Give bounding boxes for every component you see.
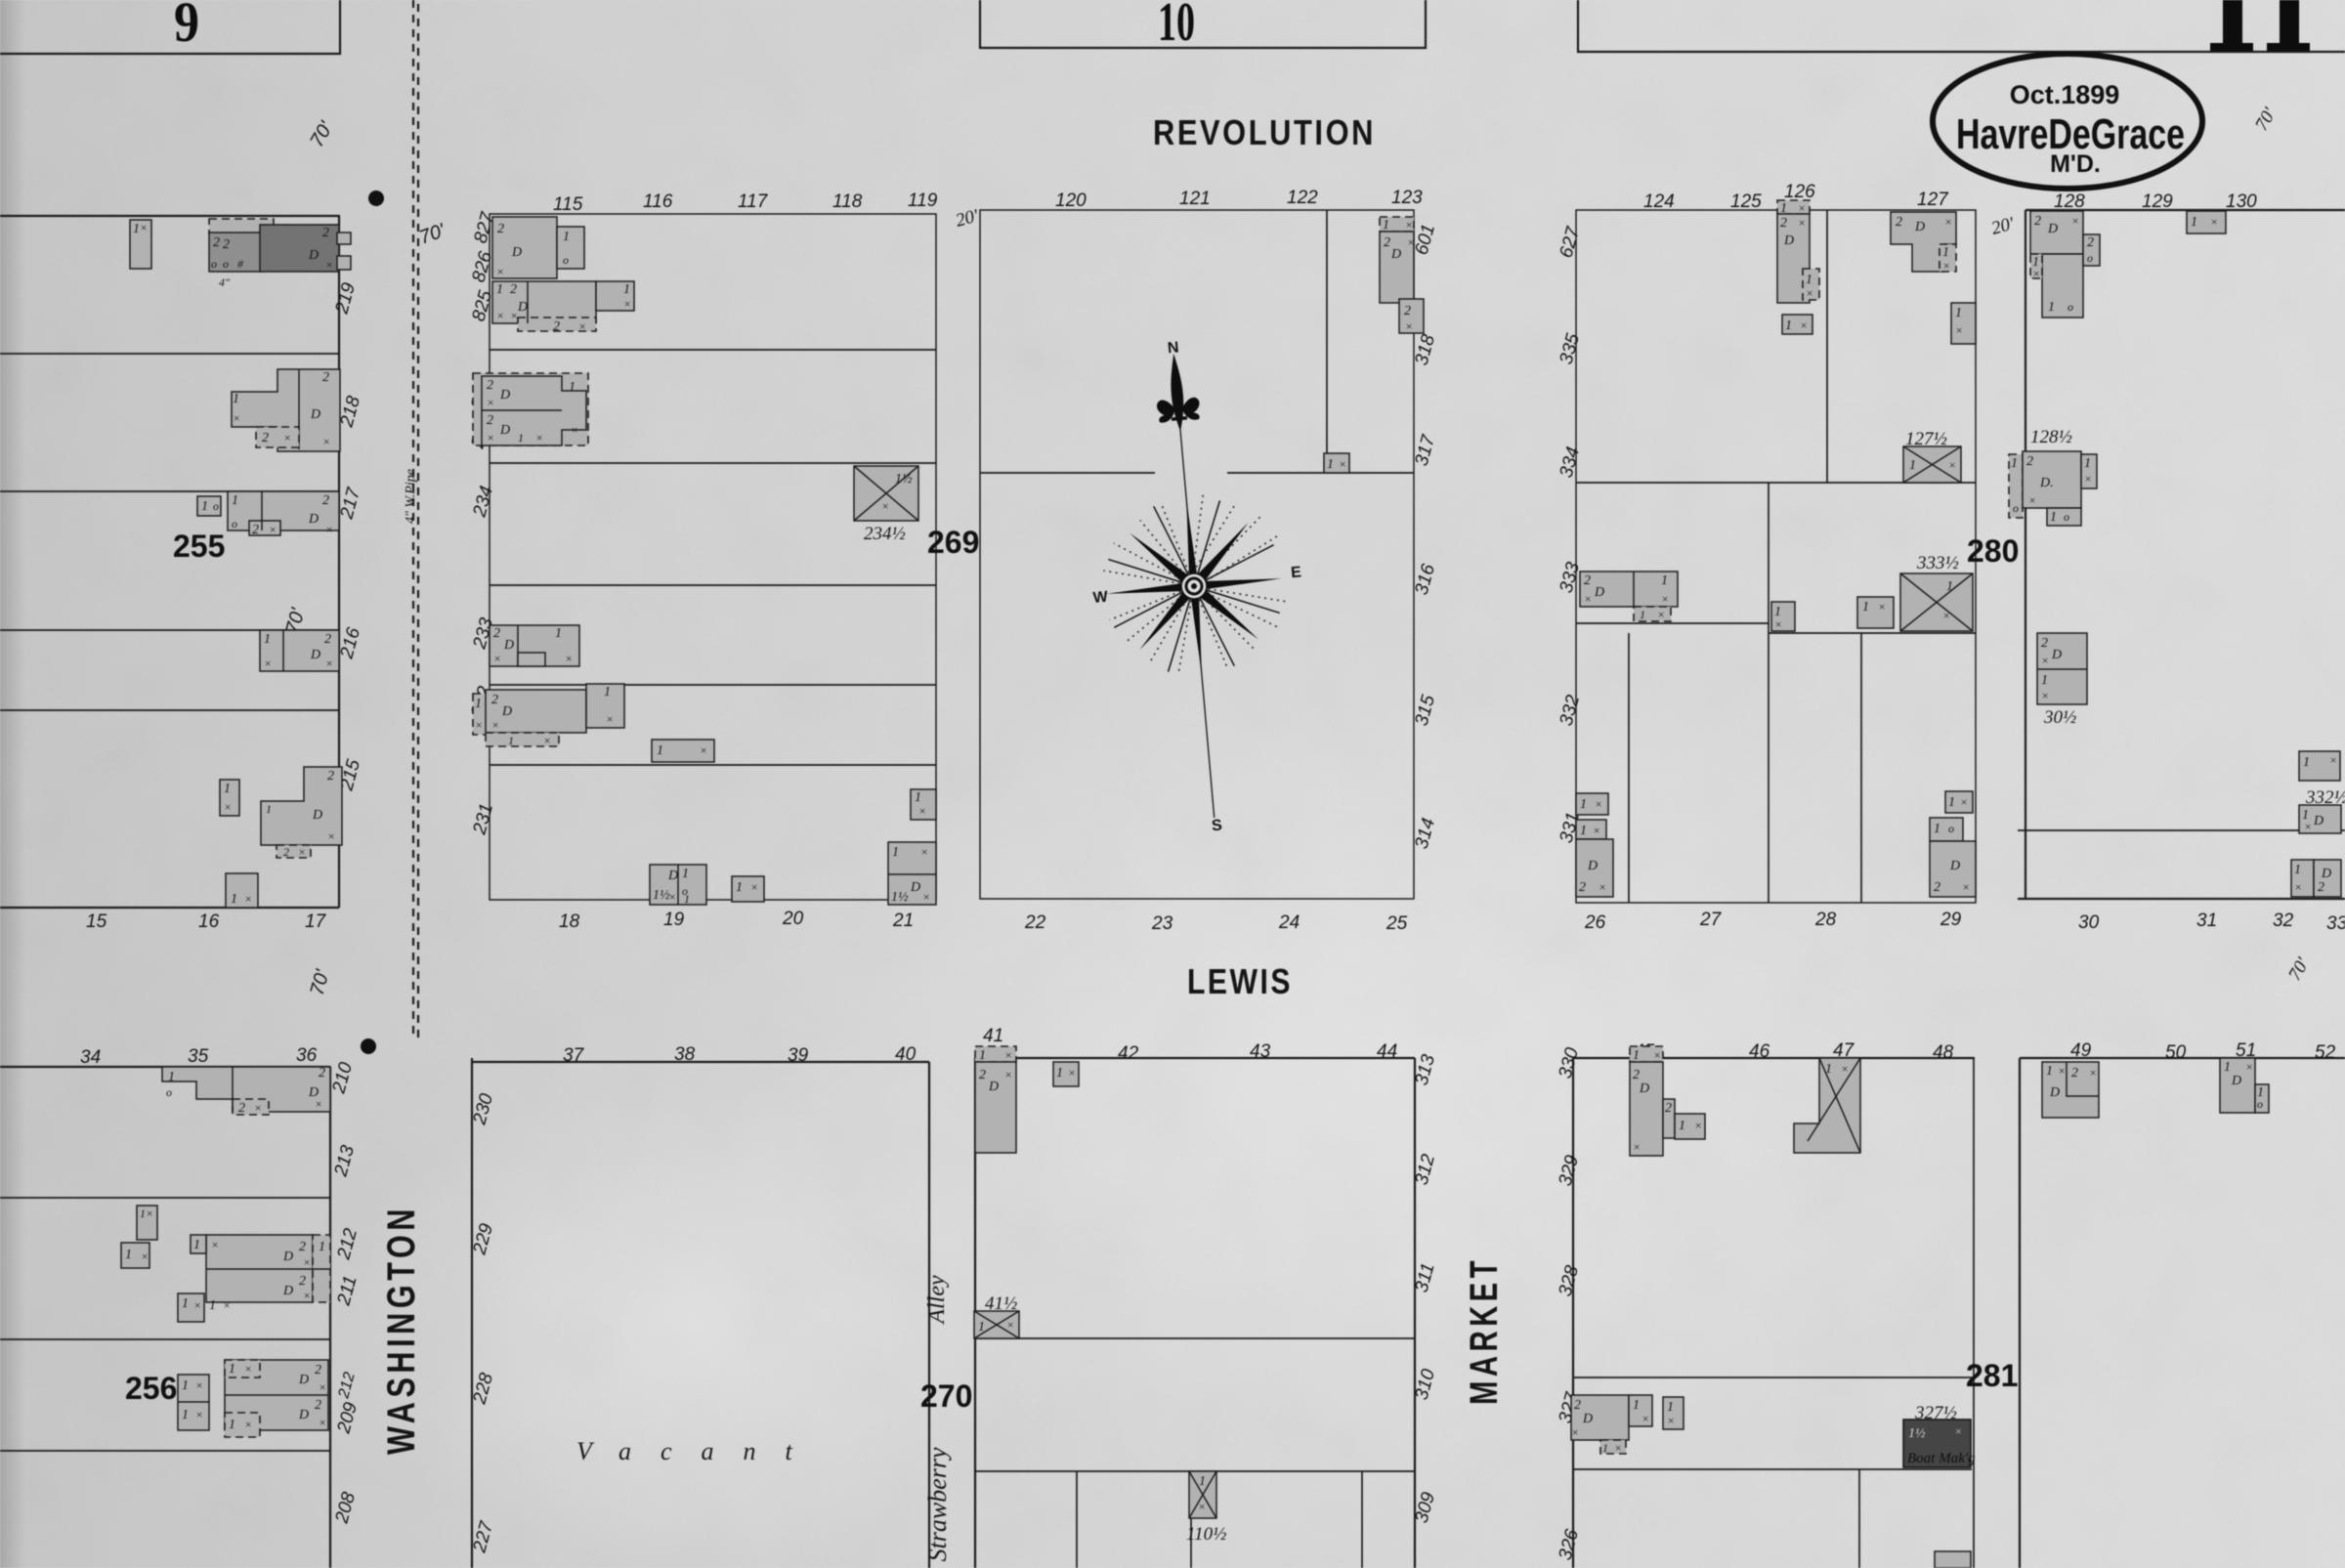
svg-text:MARKET: MARKET [1463, 1256, 1506, 1405]
svg-text:49: 49 [2070, 1040, 2092, 1061]
svg-text:×: × [195, 1378, 203, 1392]
svg-text:1: 1 [555, 626, 562, 641]
svg-text:33: 33 [2326, 913, 2345, 934]
svg-text:×: × [233, 411, 240, 425]
svg-text:×: × [2245, 1060, 2253, 1074]
svg-text:2: 2 [2034, 214, 2041, 229]
svg-text:22: 22 [1024, 912, 1046, 933]
svg-text:×: × [578, 319, 586, 333]
svg-text:1: 1 [623, 282, 630, 297]
svg-text:27: 27 [1699, 910, 1723, 930]
svg-text:2: 2 [319, 1066, 325, 1081]
svg-text:2: 2 [324, 632, 331, 647]
svg-text:D: D [501, 704, 512, 719]
svg-text:D: D [988, 1080, 999, 1094]
svg-text:×: × [244, 1362, 252, 1376]
svg-text:24: 24 [1278, 912, 1300, 933]
svg-text:×: × [1004, 1048, 1012, 1062]
svg-text:1: 1 [1955, 306, 1962, 320]
svg-text:D: D [308, 512, 319, 527]
svg-text:255: 255 [173, 529, 225, 564]
svg-text:40: 40 [895, 1044, 917, 1065]
svg-text:1: 1 [2303, 755, 2310, 770]
svg-text:o: o [213, 499, 219, 513]
svg-text:1×: 1× [140, 1207, 153, 1220]
svg-text:×: × [606, 712, 614, 726]
svg-text:×: × [1955, 1424, 1962, 1438]
svg-text:D: D [2049, 1085, 2060, 1100]
svg-text:52: 52 [2315, 1042, 2336, 1063]
svg-text:×: × [140, 221, 148, 234]
svg-text:×: × [1841, 1062, 1849, 1076]
svg-text:×: × [1339, 457, 1346, 471]
svg-text:×: × [496, 309, 504, 322]
svg-text:42: 42 [1118, 1043, 1139, 1064]
svg-text:2: 2 [2071, 1066, 2078, 1081]
svg-text:o: o [2013, 501, 2019, 515]
svg-text:46: 46 [1749, 1041, 1770, 1062]
svg-text:×: × [1661, 592, 1669, 606]
svg-text:D: D [1914, 220, 1925, 234]
svg-text:1: 1 [518, 431, 524, 445]
svg-text:36: 36 [296, 1045, 318, 1066]
svg-text:×: × [496, 265, 504, 278]
svg-text:44: 44 [1377, 1041, 1397, 1062]
svg-text:1: 1 [1825, 1062, 1832, 1077]
svg-text:×: × [1068, 1066, 1076, 1080]
svg-text:×: × [475, 718, 483, 732]
svg-text:×: × [1405, 218, 1413, 232]
svg-text:D: D [499, 388, 510, 403]
svg-text:×: × [325, 258, 333, 272]
svg-text:×: × [565, 652, 573, 665]
svg-text:1: 1 [2048, 300, 2055, 315]
svg-text:1: 1 [1602, 1441, 1608, 1455]
svg-text:2: 2 [2318, 880, 2324, 895]
svg-text:1: 1 [1580, 824, 1587, 838]
svg-text:110½: 110½ [1186, 1524, 1226, 1545]
svg-text:×: × [1878, 600, 1886, 614]
svg-text:23: 23 [1151, 913, 1173, 934]
svg-text:×: × [244, 892, 252, 906]
svg-text:1: 1 [1667, 1400, 1674, 1415]
svg-text:1: 1 [125, 1248, 132, 1262]
svg-text:2: 2 [487, 413, 493, 428]
svg-text:M'D.: M'D. [2050, 150, 2101, 178]
svg-text:1: 1 [2050, 510, 2057, 525]
svg-text:1: 1 [201, 499, 208, 514]
svg-text:×: × [487, 431, 494, 445]
svg-text:D: D [1949, 859, 1960, 873]
svg-text:×: × [319, 1416, 326, 1429]
svg-text:×: × [1798, 216, 1806, 230]
svg-text:2: 2 [327, 769, 334, 784]
svg-text:D: D [511, 245, 522, 260]
svg-text:×: × [315, 1097, 322, 1111]
svg-text:1: 1 [1780, 201, 1787, 216]
svg-text:2: 2 [1574, 1398, 1581, 1413]
svg-text:Strawberry: Strawberry [923, 1447, 952, 1561]
svg-text:1: 1 [1946, 579, 1953, 594]
svg-text:2: 2 [1584, 573, 1591, 588]
svg-text:1: 1 [193, 1238, 200, 1252]
svg-text:×: × [254, 1101, 262, 1115]
svg-text:D: D [1390, 247, 1401, 262]
svg-text:1: 1 [604, 685, 611, 699]
svg-text:280: 280 [1967, 533, 2019, 569]
svg-text:×: × [1653, 1048, 1661, 1062]
svg-text:×: × [264, 657, 272, 670]
svg-text:D: D [2047, 222, 2058, 236]
svg-text:×: × [325, 657, 333, 670]
svg-text:×: × [487, 396, 494, 409]
svg-text:1: 1 [496, 282, 503, 297]
svg-text:1: 1 [2046, 1064, 2053, 1079]
svg-text:×: × [2329, 753, 2337, 767]
svg-text:43: 43 [1250, 1041, 1271, 1062]
svg-text:D: D [282, 1250, 293, 1264]
svg-text:1½: 1½ [891, 890, 909, 905]
svg-text:×: × [224, 800, 232, 814]
svg-text:2: 2 [1384, 235, 1390, 250]
svg-text:×: × [211, 1238, 219, 1251]
svg-text:D: D [298, 1373, 309, 1387]
svg-text:S: S [1211, 817, 1222, 834]
svg-text:×: × [244, 1418, 252, 1431]
svg-text:1: 1 [319, 1240, 325, 1254]
svg-text:×: × [2041, 689, 2049, 702]
svg-text:D: D [312, 808, 322, 823]
svg-text:o: o [166, 1085, 172, 1099]
svg-text:1: 1 [684, 892, 690, 906]
svg-text:129: 129 [2142, 191, 2173, 212]
svg-text:D.: D. [2039, 476, 2054, 490]
svg-text:2: 2 [315, 1398, 321, 1413]
svg-text:×: × [2294, 880, 2302, 894]
svg-text:1: 1 [2191, 215, 2197, 230]
svg-text:1: 1 [264, 632, 271, 647]
svg-text:1: 1 [1942, 245, 1949, 260]
svg-text:Alley: Alley [924, 1275, 950, 1326]
svg-text:2: 2 [2041, 636, 2048, 651]
svg-text:D: D [517, 300, 528, 315]
svg-text:×: × [2071, 214, 2079, 228]
svg-text:2: 2 [262, 431, 269, 445]
svg-text:LEWIS: LEWIS [1187, 961, 1293, 1001]
svg-text:2: 2 [1934, 880, 1940, 895]
svg-text:1: 1 [2224, 1060, 2231, 1075]
svg-text:128½: 128½ [2030, 427, 2072, 447]
svg-text:16: 16 [198, 911, 220, 932]
svg-text:130: 130 [2226, 191, 2257, 212]
svg-text:×: × [2210, 215, 2218, 229]
svg-text:1: 1 [978, 1320, 985, 1335]
svg-text:×: × [1955, 323, 1963, 337]
svg-text:×: × [2032, 267, 2040, 280]
svg-text:1: 1 [1862, 600, 1869, 614]
svg-text:×: × [303, 1289, 311, 1302]
svg-text:4" W.Pipe: 4" W.Pipe [404, 469, 418, 524]
svg-text:122: 122 [1287, 188, 1318, 208]
svg-text:o: o [211, 257, 217, 271]
svg-text:2: 2 [315, 1363, 321, 1377]
svg-text:1: 1 [224, 782, 231, 796]
svg-text:2: 2 [223, 237, 230, 252]
svg-text:41: 41 [983, 1026, 1003, 1046]
svg-text:D: D [667, 869, 678, 883]
svg-text:D: D [310, 648, 320, 662]
svg-text:126: 126 [1784, 182, 1815, 202]
svg-text:×: × [1405, 319, 1413, 333]
svg-text:o: o [1948, 822, 1954, 835]
svg-text:19: 19 [663, 910, 685, 930]
svg-text:1: 1 [233, 392, 239, 406]
svg-text:2: 2 [299, 1274, 306, 1289]
svg-text:×: × [2058, 1064, 2066, 1078]
svg-text:2: 2 [1780, 216, 1787, 231]
svg-text:o: o [2257, 1097, 2263, 1111]
svg-text:2: 2 [1579, 880, 1586, 895]
svg-text:E: E [1290, 564, 1301, 581]
svg-text:2: 2 [252, 523, 259, 537]
svg-text:×: × [535, 431, 543, 445]
svg-text:2: 2 [1404, 304, 1411, 318]
svg-text:×: × [1595, 797, 1602, 811]
svg-text:×: × [1962, 880, 1970, 894]
svg-text:×: × [668, 890, 676, 904]
svg-text:×: × [1800, 318, 1808, 332]
svg-text:1: 1 [229, 1418, 235, 1432]
svg-text:9: 9 [174, 0, 199, 54]
svg-text:WASHINGTON: WASHINGTON [380, 1205, 423, 1455]
svg-text:17: 17 [305, 911, 327, 932]
svg-text:2: 2 [322, 493, 329, 508]
svg-text:1: 1 [266, 802, 272, 816]
svg-text:o: o [232, 517, 237, 530]
svg-text:×: × [141, 1250, 149, 1263]
svg-text:1: 1 [1383, 218, 1389, 233]
svg-text:×: × [2084, 472, 2092, 486]
svg-text:Vacant: Vacant [576, 1437, 822, 1465]
svg-text:124: 124 [1643, 191, 1675, 212]
svg-text:×: × [1774, 617, 1782, 631]
svg-text:×: × [1948, 458, 1956, 472]
svg-text:2: 2 [2026, 454, 2033, 469]
svg-text:25: 25 [1386, 913, 1408, 934]
svg-text:×: × [1198, 1500, 1206, 1513]
svg-text:1: 1 [1948, 795, 1955, 810]
svg-text:D: D [298, 1408, 309, 1422]
svg-text:125: 125 [1730, 191, 1762, 212]
svg-text:o: o [2068, 300, 2073, 314]
svg-text:2: 2 [491, 693, 498, 707]
svg-text:D: D [2313, 814, 2324, 828]
svg-text:×: × [298, 845, 306, 859]
svg-text:1: 1 [508, 734, 514, 747]
svg-text:×: × [269, 523, 277, 536]
svg-text:35: 35 [188, 1046, 209, 1067]
svg-text:1: 1 [1633, 1398, 1640, 1413]
svg-text:1: 1 [1640, 608, 1645, 621]
svg-text:30: 30 [2078, 912, 2100, 933]
svg-text:128: 128 [2054, 191, 2085, 212]
svg-text:2: 2 [487, 378, 493, 393]
svg-text:1: 1 [1785, 318, 1792, 333]
svg-text:o: o [563, 253, 569, 267]
svg-text:39: 39 [788, 1045, 809, 1066]
svg-text:20: 20 [782, 909, 804, 929]
svg-text:×: × [918, 804, 926, 818]
svg-text:2: 2 [283, 845, 289, 859]
svg-text:1: 1 [1679, 1119, 1685, 1133]
svg-text:o: o [223, 257, 229, 271]
svg-text:116: 116 [643, 191, 673, 212]
svg-text:×: × [325, 523, 333, 536]
svg-text:×: × [1004, 1068, 1012, 1081]
svg-text:1: 1 [1056, 1066, 1063, 1081]
svg-text:×: × [1942, 609, 1950, 622]
svg-text:D: D [499, 423, 510, 438]
svg-text:1: 1 [209, 1298, 216, 1313]
svg-text:×: × [1806, 286, 1813, 300]
svg-text:D: D [2051, 648, 2062, 662]
svg-text:×: × [1942, 259, 1950, 273]
svg-text:1: 1 [2011, 456, 2018, 471]
svg-text:120: 120 [1055, 191, 1087, 211]
svg-text:31: 31 [2196, 911, 2217, 931]
svg-text:1: 1 [569, 380, 576, 395]
svg-text:×: × [1657, 608, 1665, 621]
svg-text:Oct.1899: Oct.1899 [2010, 80, 2120, 109]
svg-text:×: × [1614, 1441, 1622, 1455]
svg-text:×: × [1571, 1425, 1579, 1439]
svg-text:D: D [2231, 1074, 2241, 1088]
svg-text:2: 2 [1665, 1101, 1672, 1116]
svg-text:W: W [1092, 589, 1109, 607]
svg-text:2: 2 [1896, 215, 1902, 230]
svg-text:×: × [700, 743, 707, 757]
svg-text:D: D [503, 638, 514, 653]
svg-text:117: 117 [738, 191, 769, 212]
svg-text:×: × [750, 880, 758, 894]
svg-text:256: 256 [125, 1371, 177, 1406]
svg-text:1: 1 [168, 1070, 175, 1084]
svg-text:2: 2 [2087, 235, 2094, 250]
svg-text:×: × [322, 435, 330, 448]
svg-text:D: D [310, 407, 320, 422]
svg-text:1: 1 [182, 1296, 189, 1311]
svg-text:123: 123 [1391, 188, 1423, 208]
svg-text:2: 2 [1633, 1068, 1640, 1082]
svg-text:×: × [1599, 880, 1606, 894]
svg-text:21: 21 [892, 911, 914, 931]
svg-text:#: # [237, 257, 244, 271]
svg-text:50: 50 [2165, 1042, 2187, 1063]
svg-text:1: 1 [475, 697, 482, 711]
svg-text:×: × [1960, 795, 1968, 809]
svg-text:×: × [193, 1298, 201, 1312]
svg-text:29: 29 [1940, 910, 1962, 930]
svg-text:×: × [623, 297, 631, 311]
svg-text:×: × [920, 845, 928, 859]
svg-text:1: 1 [682, 867, 689, 881]
svg-text:2: 2 [553, 319, 560, 334]
svg-text:1: 1 [563, 230, 570, 244]
svg-text:×: × [881, 499, 889, 513]
svg-text:1: 1 [1909, 458, 1916, 473]
svg-text:×: × [327, 829, 335, 843]
svg-text:34: 34 [80, 1047, 101, 1068]
svg-text:1: 1 [232, 493, 238, 508]
svg-text:118: 118 [832, 191, 863, 212]
svg-text:1: 1 [979, 1048, 986, 1063]
svg-text:1: 1 [657, 743, 663, 758]
svg-text:×: × [2041, 654, 2049, 667]
svg-text:1: 1 [1661, 573, 1668, 588]
svg-text:26: 26 [1584, 912, 1606, 933]
svg-text:1: 1 [182, 1378, 189, 1393]
svg-text:2: 2 [213, 235, 220, 250]
svg-text:×: × [543, 734, 551, 747]
svg-text:234½: 234½ [864, 524, 906, 544]
svg-text:×: × [283, 431, 291, 445]
svg-text:D: D [910, 880, 920, 895]
svg-text:10: 10 [1158, 0, 1195, 53]
svg-text:REVOLUTION: REVOLUTION [1153, 112, 1376, 152]
svg-text:18: 18 [559, 911, 580, 932]
svg-text:×: × [922, 890, 930, 904]
svg-text:333½: 333½ [1916, 553, 1959, 573]
svg-text:×: × [1694, 1119, 1702, 1132]
svg-text:38: 38 [674, 1044, 696, 1065]
svg-text:×: × [571, 423, 578, 437]
svg-text:1: 1 [1806, 273, 1812, 287]
svg-text:×: × [1667, 1414, 1675, 1427]
svg-text:o: o [2064, 510, 2069, 524]
svg-text:D: D [1582, 1412, 1593, 1426]
svg-text:1: 1 [2084, 456, 2091, 471]
svg-text:×: × [195, 1408, 203, 1421]
svg-text:48: 48 [1933, 1042, 1954, 1063]
svg-text:119: 119 [908, 191, 938, 211]
svg-text:1½: 1½ [895, 472, 913, 487]
svg-text:×: × [493, 652, 501, 665]
svg-text:×: × [223, 1298, 231, 1312]
svg-text:37: 37 [563, 1045, 585, 1066]
svg-text:1: 1 [2294, 863, 2301, 877]
svg-text:2: 2 [322, 370, 329, 385]
svg-text:D: D [308, 248, 319, 263]
svg-text:×: × [1584, 592, 1592, 606]
svg-text:1: 1 [1633, 1048, 1640, 1063]
svg-text:D: D [2321, 867, 2331, 881]
svg-text:×: × [2028, 493, 2036, 507]
svg-text:30½: 30½ [2043, 707, 2076, 728]
svg-text:×: × [491, 718, 499, 732]
svg-text:1: 1 [915, 790, 921, 805]
svg-text:2: 2 [322, 226, 329, 240]
svg-text:×: × [1593, 824, 1600, 837]
svg-text:×: × [510, 309, 518, 322]
svg-text:1½: 1½ [1908, 1426, 1926, 1441]
svg-text:×: × [319, 1380, 326, 1394]
svg-text:2: 2 [238, 1101, 245, 1116]
svg-text:4": 4" [219, 275, 231, 289]
svg-text:270: 270 [920, 1378, 972, 1414]
svg-text:2: 2 [493, 626, 500, 641]
svg-text:1: 1 [1580, 797, 1587, 812]
svg-text:1: 1 [182, 1408, 189, 1422]
